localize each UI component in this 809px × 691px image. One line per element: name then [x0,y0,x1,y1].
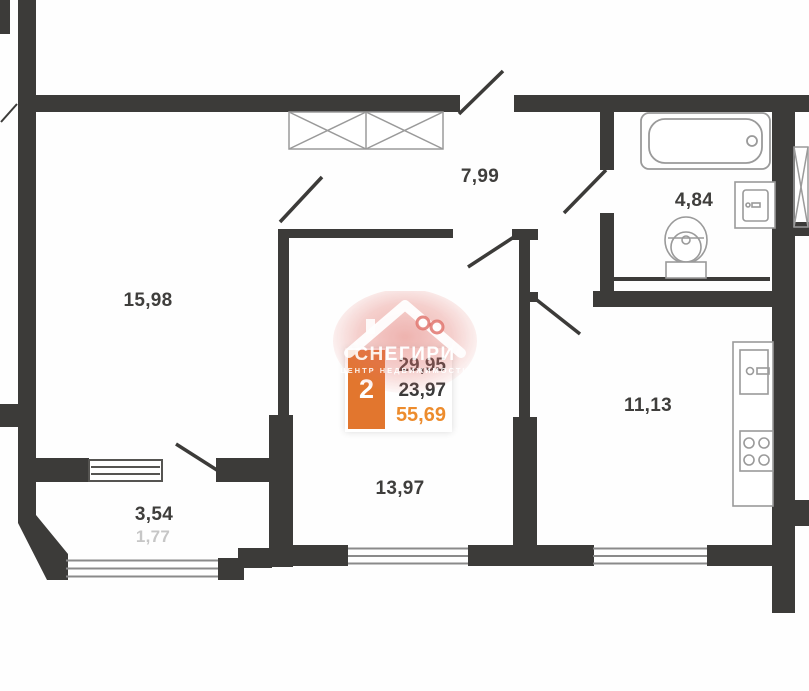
bathtub-icon [641,113,770,169]
room-area-label-living: 13,97 [375,478,424,500]
stove-icon [740,431,773,471]
wall-left-stub [0,404,18,427]
wall-bedroom-right [278,229,289,415]
wall-tick-line [1,104,17,122]
bedroom-door-line [280,177,322,222]
rooms-count-value: 2 [359,374,374,405]
bathroom-door-line [564,170,606,213]
room-area-label-kitchen: 11,13 [624,395,672,417]
room-area-label-hallway: 7,99 [461,166,499,188]
balcony-door-line [176,444,220,472]
room-area-label-balcony-reduced: 1,77 [136,527,170,547]
window-kitchen-bottom [593,549,707,564]
wall-right [772,112,795,567]
wall-top-b [514,95,809,112]
wall-top-left-corner [0,0,10,34]
wall-right-bottom-stub [772,567,795,613]
floor-plan-drawing [0,0,809,691]
shaft-icon [794,147,808,227]
room-area-label-bedroom: 15,98 [123,290,172,312]
wall-bottom-c [707,545,774,566]
entry-door-line [459,71,503,114]
floor-plan-screenshot: 15,98 7,99 4,84 11,13 13,97 3,54 1,77 2 … [0,0,809,691]
room-area-label-bathroom: 4,84 [675,190,713,212]
wall-bottom-a [292,545,348,566]
window-balcony [66,561,218,577]
area-line1: 29,95 [396,353,446,378]
wall-bathroom-kitchen [593,291,795,307]
wall-balcony-step-b [238,548,272,568]
window-living-left [348,549,468,564]
apartment-info-card: 2 29,95 23,97 55,69 [345,348,452,432]
wall-bottom-b [468,545,594,566]
toilet-icon [665,217,707,278]
wall-central-thick [513,417,537,547]
living-door-line [468,235,517,267]
wardrobe-icon [289,112,443,149]
area-values: 29,95 23,97 55,69 [396,353,446,428]
wall-central-thin [519,240,530,417]
area-line2: 23,97 [396,378,446,403]
wall-left [18,0,36,522]
wall-right-edge-stub [794,500,809,526]
kitchen-door-line [533,297,580,334]
bathroom-sink-icon [735,182,775,228]
walls [0,0,809,613]
wall-bathroom-left-upper [600,112,614,170]
area-total: 55,69 [396,403,446,428]
wall-hall-bedroom [283,229,453,238]
wall-top-a [18,95,460,112]
rooms-count-badge: 2 [348,350,385,429]
kitchen-sink-icon [740,350,769,394]
window-bedroom-balcony [89,460,162,481]
wall-chamfer-bottom-left [18,510,68,580]
room-area-label-balcony: 3,54 [135,504,173,526]
wall-bedroom-bottom-a [36,458,89,482]
wall-bedroom-bottom-b [216,458,269,482]
wall-living-left [269,415,293,567]
